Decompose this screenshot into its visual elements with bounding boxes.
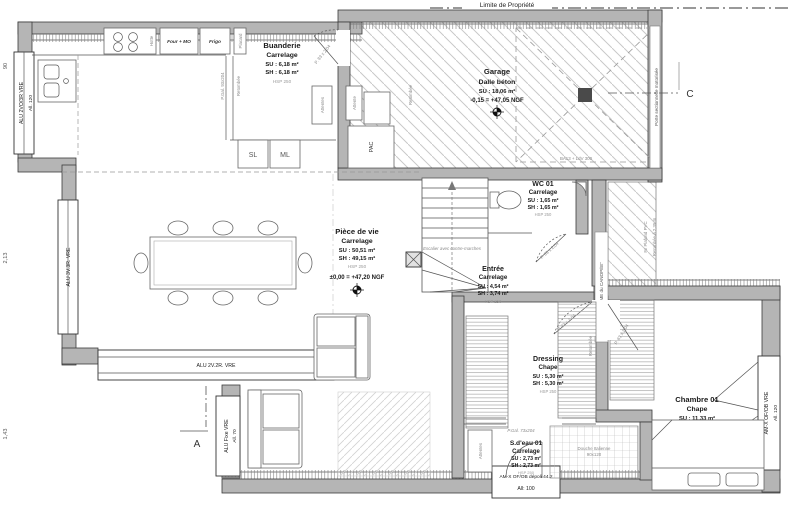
attentes-label: Attentes — [320, 96, 325, 113]
section-letter: C — [686, 89, 693, 100]
section-letter: A — [194, 439, 201, 450]
sectional-door-label: Porte sectionnelle motorisée — [654, 68, 659, 126]
retombee-note: Retombée — [588, 335, 593, 356]
window-bay: ALU Fixe VRE All. 70 — [216, 396, 240, 476]
room-name: Entrée — [482, 266, 504, 273]
pac-label: PAC — [369, 142, 375, 153]
dimension: 90 — [3, 63, 9, 69]
room-finish: Dalle béton — [479, 79, 516, 86]
room-su: SU : 50,51 m² — [339, 247, 375, 254]
room-name: WC 01 — [532, 181, 554, 188]
armchair — [248, 390, 302, 468]
toilet — [490, 191, 521, 209]
window-label: ALU 3V.3R. VRE — [66, 247, 72, 287]
floor-plan-svg: Limite de Propriété — [0, 0, 792, 513]
porch-hatch — [608, 182, 656, 286]
room-name: S.d'eau 01 — [510, 440, 543, 447]
cabinet-label: Placard — [238, 33, 243, 48]
pocket-door-opening — [506, 415, 562, 426]
room-su: SU : 1,65 m² — [528, 198, 559, 204]
garage-floor-hatch — [350, 22, 648, 168]
window-sill-label: All: 100 — [517, 486, 534, 492]
window-label: AM-X OF/OB VRE — [764, 391, 770, 434]
room-sh: SH : 1,65 m² — [528, 205, 559, 211]
room-sh: SH : 5,30 m² — [533, 381, 564, 387]
room-sh: SH : 49,15 m² — [339, 255, 375, 262]
room-sh: SH : 6,18 m² — [265, 69, 298, 76]
fx-plafond-label: Fx Plafond PVC — [643, 221, 648, 252]
room-hsp: HSP 250 — [535, 212, 552, 217]
pocket-door-label: P.Gal. 93x204 — [220, 72, 225, 100]
sofa — [314, 314, 370, 380]
room-su: SU : 2,73 m² — [511, 456, 541, 462]
room-su: SU : 4,54 m² — [478, 284, 509, 290]
room-sh: SH : 3,74 m² — [478, 291, 509, 297]
room-finish: Carrelage — [479, 274, 508, 281]
attentes-label: Attentes — [478, 442, 483, 459]
rug — [338, 392, 430, 476]
room-finish: Carrelage — [512, 449, 540, 455]
window-sill-label: All. 120 — [28, 95, 34, 111]
ml-label: ML — [280, 152, 290, 159]
window-left-mid: ALU 3V.3R. VRE — [58, 200, 78, 334]
window-label: ALU 2V.2R. VRE — [196, 363, 236, 369]
room-finish: Chape — [539, 364, 558, 371]
room-sh: SH : 2,73 m² — [511, 463, 541, 469]
stairs-note: Escalier avec contre-marches — [423, 246, 482, 251]
bed — [652, 420, 764, 490]
sink — [38, 60, 76, 102]
room-finish: Carrelage — [529, 189, 558, 196]
room-hsp: HSP 250 — [273, 79, 292, 84]
room-name: Garage — [484, 67, 510, 76]
room-name: Pièce de vie — [335, 227, 378, 236]
dimension: 2,13 — [3, 253, 9, 264]
window-left-top: ALU 2VO/3R VRE All. 120 — [14, 52, 34, 154]
shower-label-1: Douche Italienne — [578, 446, 612, 451]
chimney — [578, 88, 592, 102]
sl-label: SL — [249, 152, 258, 159]
room-hsp: HSP 250 — [485, 299, 502, 304]
room-hsp: HSP 250 — [518, 470, 535, 475]
property-line-label: Limite de Propriété — [480, 2, 535, 9]
room-finish: Carrelage — [266, 52, 298, 59]
floor-plan: Limite de Propriété — [0, 0, 792, 513]
room-finish: Chape — [687, 406, 708, 413]
window-bottom-left: ALU 2V.2R. VRE — [98, 350, 334, 380]
column — [406, 252, 421, 267]
room-name: Buanderie — [263, 41, 300, 50]
door-opening — [336, 30, 350, 66]
oven-label: Four + MO — [167, 39, 191, 45]
pocket-door-label: P.Gal. 73x204 — [507, 428, 535, 433]
attente-label: Attente — [352, 95, 357, 109]
window-sill-label: All. 120 — [773, 405, 779, 421]
room-finish: Carrelage — [341, 238, 373, 245]
room-name: Dressing — [533, 356, 563, 363]
retombee-note: Retombée — [408, 84, 413, 105]
room-name: Chambre 01 — [675, 395, 719, 404]
retombee-note: Retombée — [236, 75, 241, 96]
dimension: 1,43 — [3, 429, 9, 440]
room-level: -0,15 = +47,05 NGF — [470, 98, 524, 104]
hotte-label: Hotte — [149, 35, 154, 46]
room-hsp: HSP 250 — [540, 389, 557, 394]
room-level: ±0,00 = +47,20 NGF — [330, 275, 385, 281]
shower-label-2: 90x120 — [587, 452, 602, 457]
room-su: SU : 18,06 m² — [479, 88, 515, 95]
window-label: ALU 2VO/3R VRE — [19, 81, 25, 124]
window-label: ALU Fixe VRE — [224, 419, 230, 453]
retombee-235-label: Retombée à 2,35 m — [652, 217, 657, 256]
ba13-note: BA13 + LdV 300 — [560, 156, 593, 161]
room-su: SU : 5,30 m² — [533, 374, 564, 380]
wardrobe — [558, 302, 596, 418]
room-su: SU : 6,18 m² — [265, 61, 298, 68]
wardrobe — [466, 316, 508, 428]
room-hsp: HSP 250 — [348, 264, 367, 269]
window-sill-label: All. 70 — [232, 429, 238, 443]
fridge-label: Frigo — [209, 39, 221, 45]
